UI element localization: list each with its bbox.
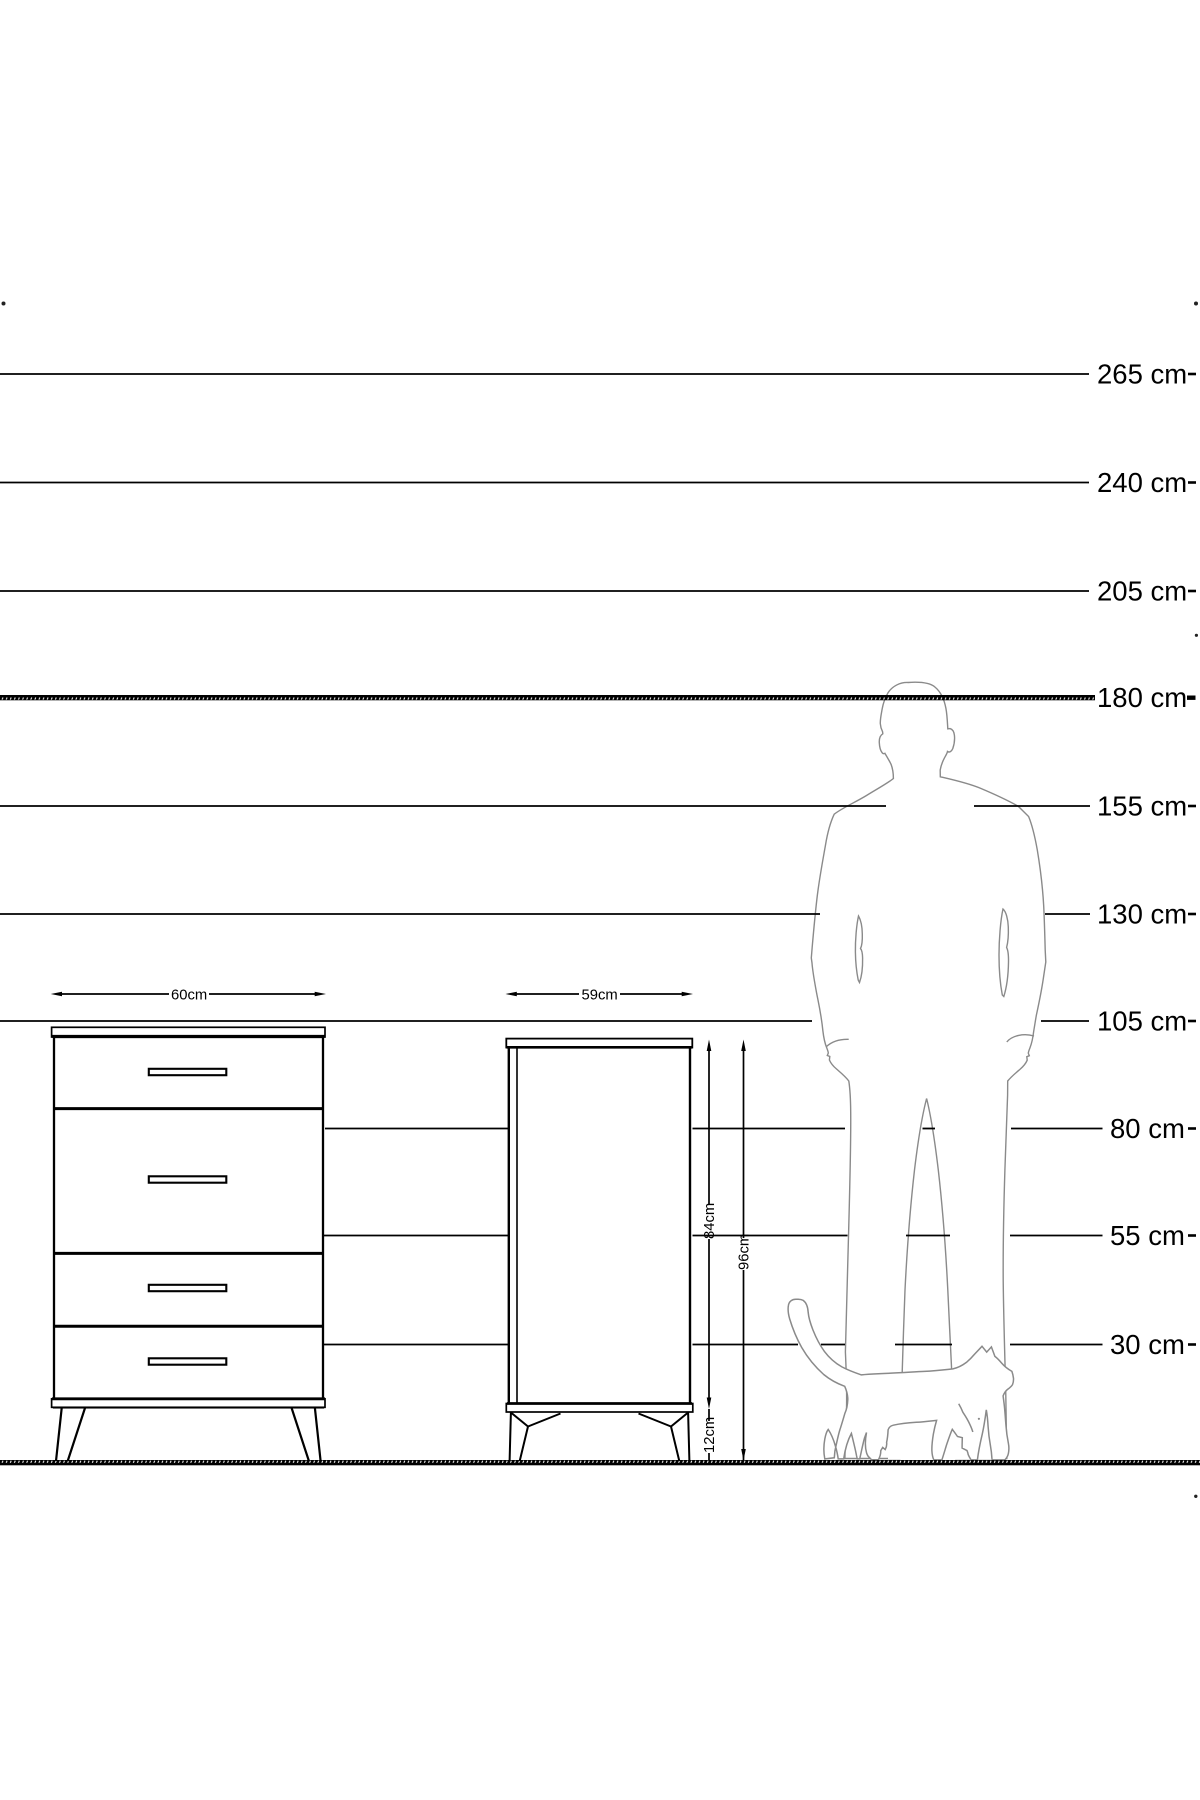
svg-text:84cm: 84cm xyxy=(702,1203,718,1239)
svg-text:240 cm: 240 cm xyxy=(1097,467,1187,498)
svg-text:80 cm: 80 cm xyxy=(1110,1113,1185,1144)
svg-text:105 cm: 105 cm xyxy=(1097,1006,1187,1037)
svg-text:12cm: 12cm xyxy=(702,1417,718,1453)
svg-text:96cm: 96cm xyxy=(737,1234,753,1270)
svg-text:59cm: 59cm xyxy=(582,988,618,1004)
svg-text:180 cm: 180 cm xyxy=(1097,682,1187,713)
svg-text:205 cm: 205 cm xyxy=(1097,576,1187,607)
svg-text:130 cm: 130 cm xyxy=(1097,899,1187,930)
svg-text:155 cm: 155 cm xyxy=(1097,791,1187,822)
svg-text:55 cm: 55 cm xyxy=(1110,1220,1185,1251)
svg-text:30 cm: 30 cm xyxy=(1110,1329,1185,1360)
svg-text:60cm: 60cm xyxy=(171,988,207,1004)
svg-text:265 cm: 265 cm xyxy=(1097,359,1187,390)
